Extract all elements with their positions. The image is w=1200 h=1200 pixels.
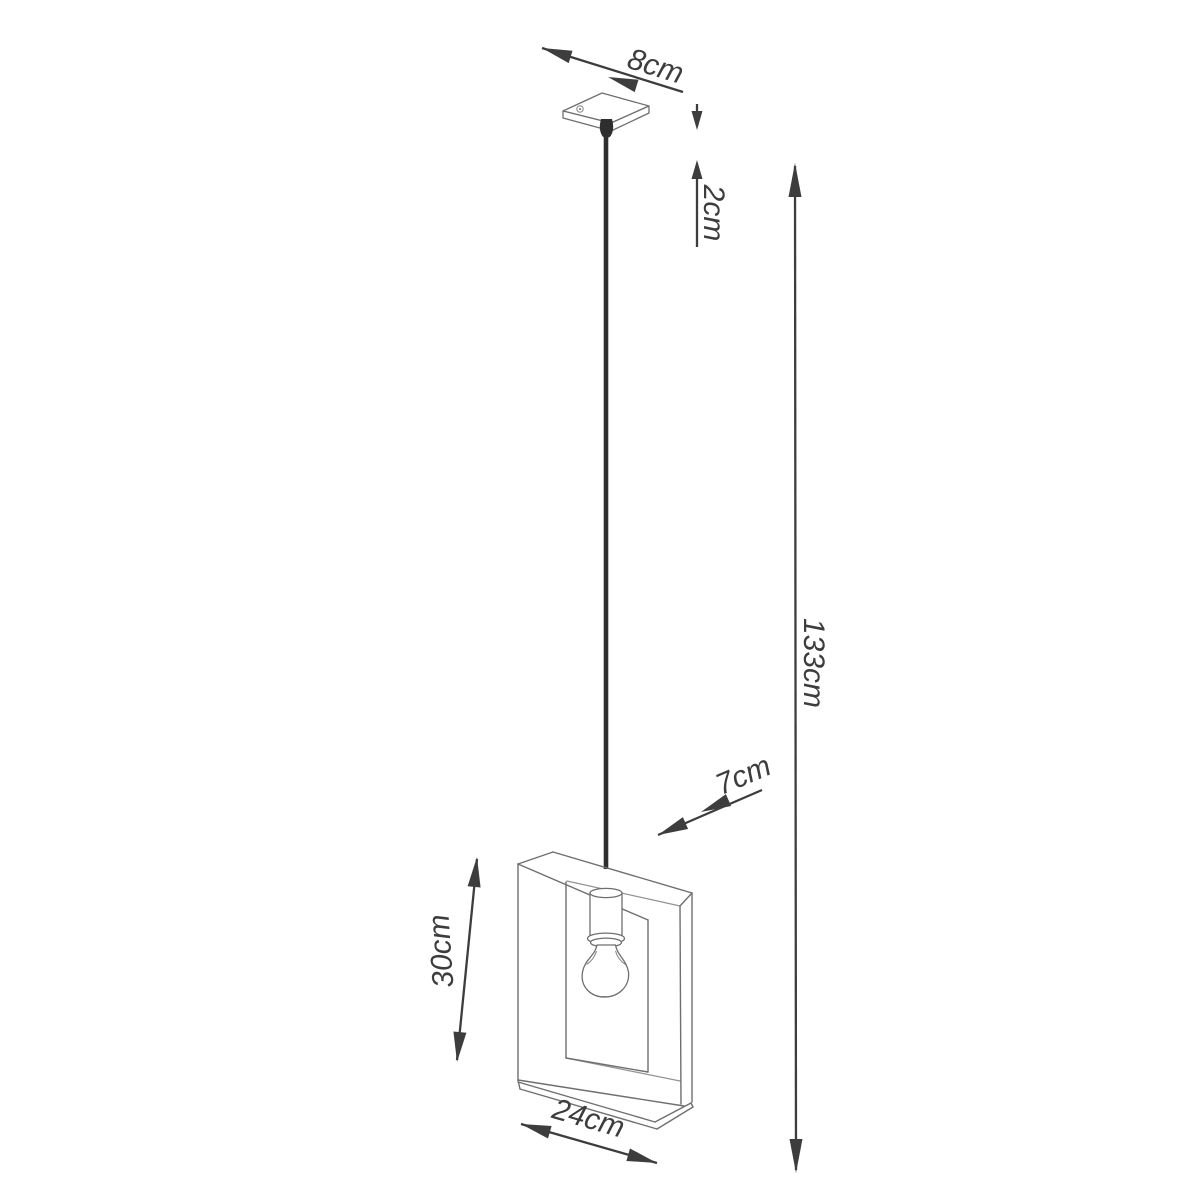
frame-bottomright-cap	[691, 1103, 693, 1107]
dim-total-height-arrowhead-up	[789, 163, 802, 197]
frame-bottomleft-cap	[518, 1080, 520, 1089]
canopy-screw-dot	[579, 108, 581, 110]
dim-canopy-width: 8cm	[542, 42, 687, 92]
dim-canopy-height-arrowhead-down	[692, 111, 703, 130]
dim-total-height-label: 133cm	[797, 618, 830, 708]
dim-frame-height: 30cm	[422, 857, 480, 1062]
dim-canopy-width-arrowhead-end	[542, 48, 573, 63]
dim-frame-depth-label: 7cm	[711, 749, 776, 802]
dim-canopy-width-arrowhead-mid	[608, 77, 639, 92]
frame-top-edge	[553, 852, 692, 893]
opening-top-edge	[518, 864, 648, 920]
dim-frame-width-arrowhead-right	[626, 1149, 657, 1164]
frame-topright-bevel	[680, 893, 692, 906]
dim-total-height-line	[795, 166, 796, 1170]
lamp-drawing: 8cm 2cm 133cm 7cm 30cm 24cm	[0, 0, 1200, 1200]
frame-front-right-edge	[680, 906, 681, 1104]
dim-canopy-height-label: 2cm	[697, 184, 730, 242]
light-bulb	[582, 945, 628, 997]
dim-total-height-arrowhead-down	[790, 1139, 803, 1173]
dim-frame-depth-arrowhead-end	[658, 817, 688, 835]
dim-frame-width-arrowhead-left	[521, 1124, 552, 1139]
dim-frame-depth: 7cm	[658, 749, 776, 835]
bulb-socket	[582, 888, 628, 997]
dim-frame-width: 24cm	[521, 1092, 657, 1163]
dim-frame-width-label: 24cm	[548, 1092, 629, 1144]
inner-bottom-face-edge	[566, 1058, 680, 1081]
dim-frame-height-label: 30cm	[422, 913, 460, 988]
dim-canopy-height: 2cm	[692, 104, 731, 247]
power-cord	[600, 119, 613, 869]
dim-frame-height-line	[457, 859, 477, 1060]
dim-frame-height-arrowhead-down	[453, 1032, 466, 1063]
frame-front-bottom-edge	[518, 1080, 684, 1106]
dimension-diagram: 8cm 2cm 133cm 7cm 30cm 24cm	[0, 0, 1200, 1200]
dim-total-height: 133cm	[789, 163, 831, 1173]
socket-top-rim	[590, 888, 622, 897]
dim-frame-height-arrowhead-up	[468, 857, 481, 888]
frame-topleft-edge	[518, 852, 553, 864]
dim-canopy-height-arrowhead-up	[692, 160, 703, 179]
